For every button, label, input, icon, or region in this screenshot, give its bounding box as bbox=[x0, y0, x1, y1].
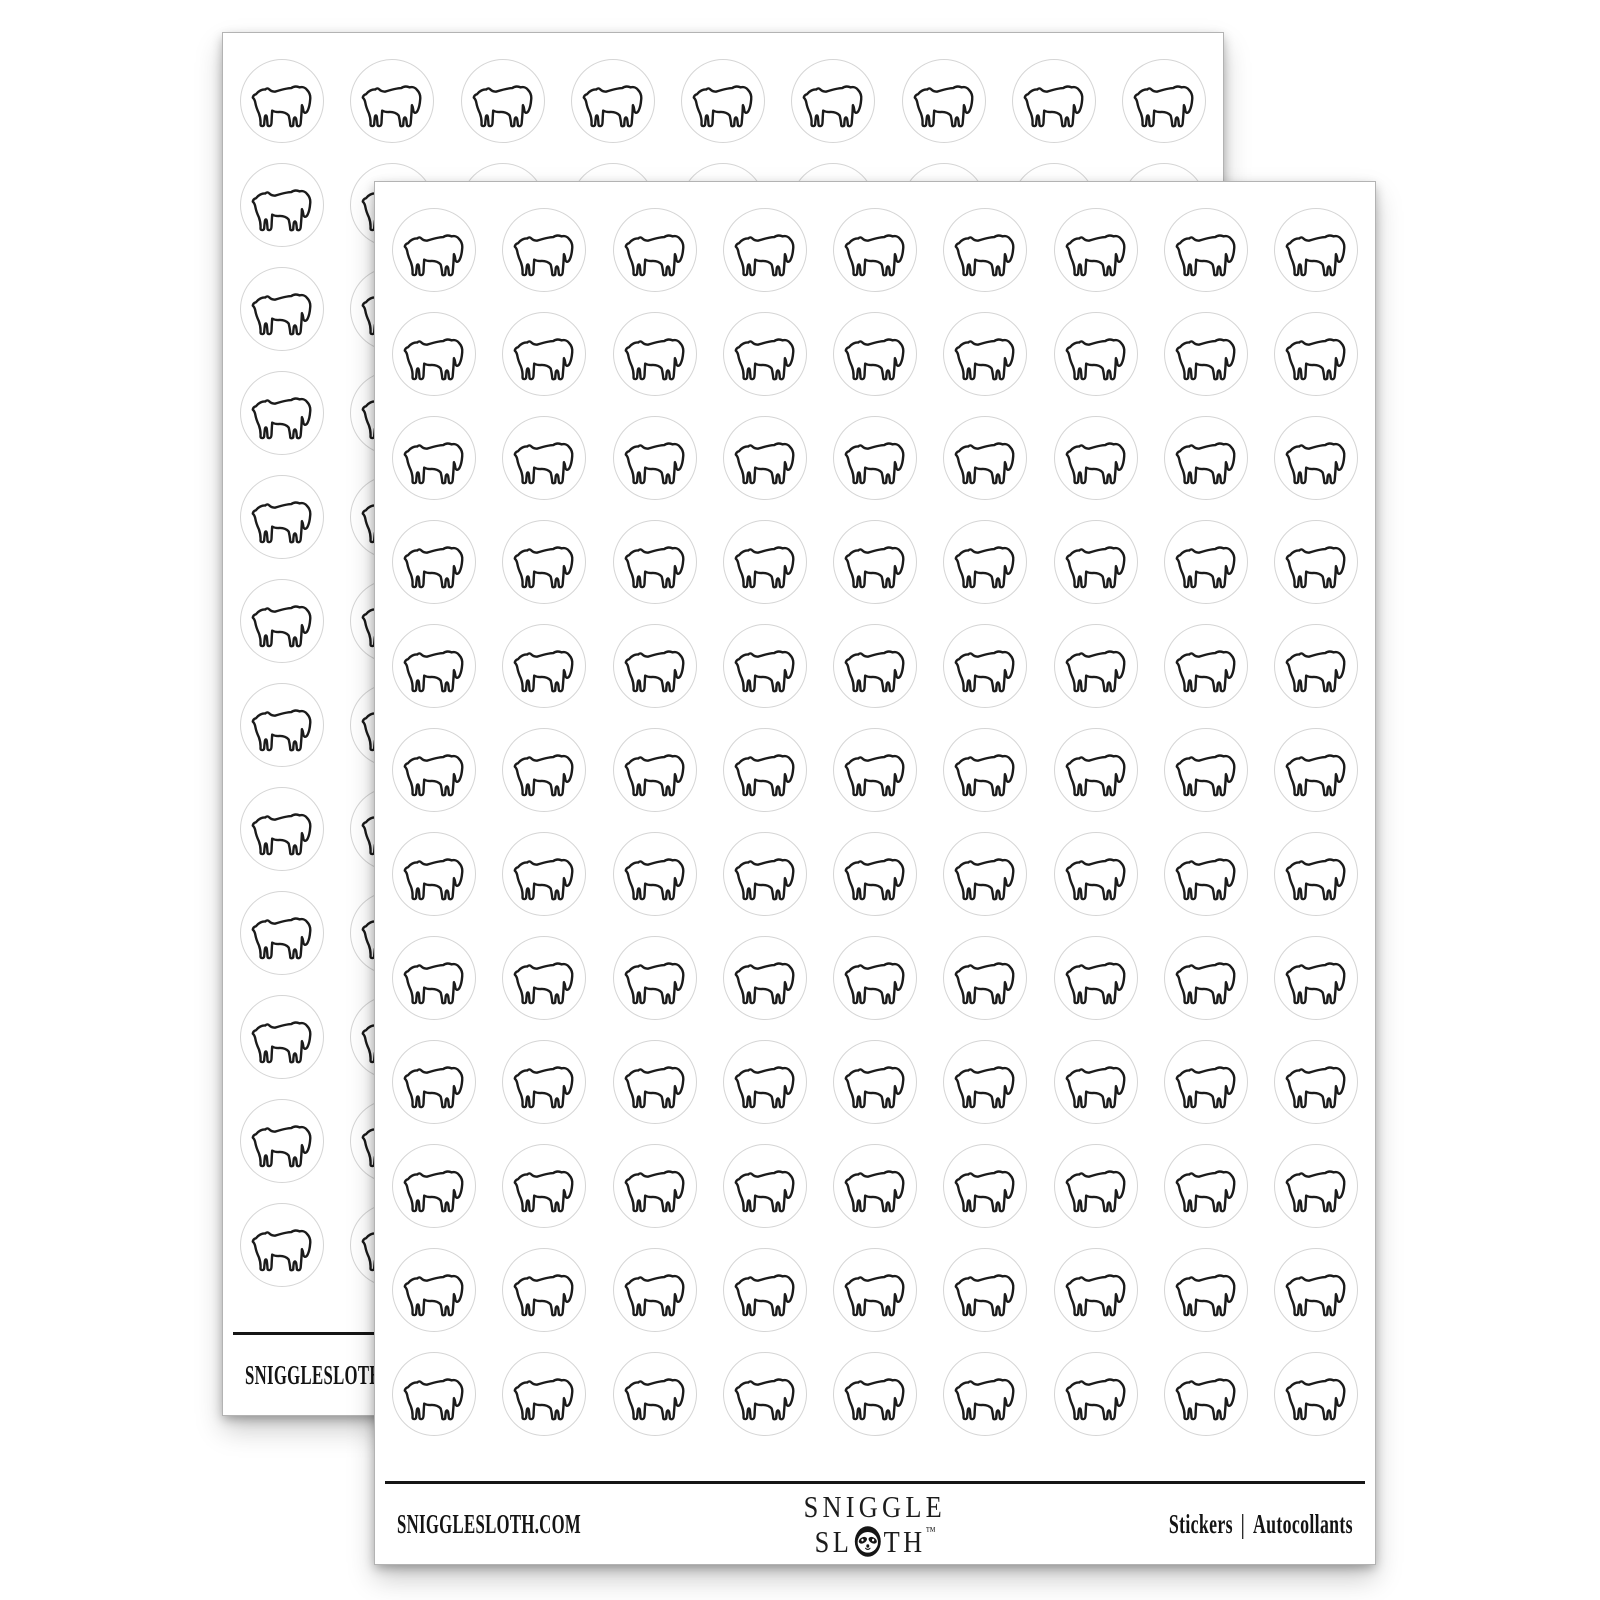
great-pyrenees-dog-outline-icon bbox=[250, 77, 314, 129]
dog-sticker bbox=[1054, 520, 1138, 604]
dog-sticker bbox=[1274, 312, 1358, 396]
great-pyrenees-dog-outline-icon bbox=[953, 434, 1017, 486]
great-pyrenees-dog-outline-icon bbox=[402, 330, 466, 382]
great-pyrenees-dog-outline-icon bbox=[623, 1266, 687, 1318]
dog-sticker bbox=[1054, 208, 1138, 292]
label-stickers-fr: Autocollants bbox=[1253, 1509, 1353, 1539]
dog-sticker bbox=[833, 624, 917, 708]
great-pyrenees-dog-outline-icon bbox=[1064, 1058, 1128, 1110]
great-pyrenees-dog-outline-icon bbox=[1174, 1370, 1238, 1422]
dog-sticker bbox=[613, 1352, 697, 1436]
dog-sticker bbox=[240, 475, 324, 559]
great-pyrenees-dog-outline-icon bbox=[1174, 850, 1238, 902]
great-pyrenees-dog-outline-icon bbox=[1284, 538, 1348, 590]
dog-sticker bbox=[1164, 520, 1248, 604]
great-pyrenees-dog-outline-icon bbox=[512, 1058, 576, 1110]
great-pyrenees-dog-outline-icon bbox=[1064, 434, 1128, 486]
dog-sticker bbox=[1054, 416, 1138, 500]
footer-row: SNIGGLESLOTH.COM SNIGGLE SL bbox=[375, 1484, 1375, 1562]
dog-sticker bbox=[1054, 1352, 1138, 1436]
dog-sticker bbox=[943, 624, 1027, 708]
dog-sticker bbox=[1054, 936, 1138, 1020]
dog-sticker bbox=[1054, 624, 1138, 708]
great-pyrenees-dog-outline-icon bbox=[512, 538, 576, 590]
great-pyrenees-dog-outline-icon bbox=[1174, 434, 1238, 486]
dog-sticker bbox=[502, 936, 586, 1020]
great-pyrenees-dog-outline-icon bbox=[843, 538, 907, 590]
great-pyrenees-dog-outline-icon bbox=[402, 1058, 466, 1110]
great-pyrenees-dog-outline-icon bbox=[402, 954, 466, 1006]
dog-sticker bbox=[1164, 208, 1248, 292]
great-pyrenees-dog-outline-icon bbox=[623, 434, 687, 486]
dog-sticker bbox=[1164, 1352, 1248, 1436]
great-pyrenees-dog-outline-icon bbox=[623, 1058, 687, 1110]
great-pyrenees-dog-outline-icon bbox=[1284, 330, 1348, 382]
great-pyrenees-dog-outline-icon bbox=[623, 746, 687, 798]
great-pyrenees-dog-outline-icon bbox=[733, 642, 797, 694]
dog-sticker bbox=[502, 1248, 586, 1332]
dog-sticker bbox=[681, 59, 765, 143]
brand-line2: SL TH ™ bbox=[815, 1525, 936, 1558]
dog-sticker bbox=[1164, 1248, 1248, 1332]
dog-sticker bbox=[833, 1248, 917, 1332]
great-pyrenees-dog-outline-icon bbox=[801, 77, 865, 129]
sticker-sheet-front: SNIGGLESLOTH.COM SNIGGLE SL bbox=[375, 182, 1375, 1564]
great-pyrenees-dog-outline-icon bbox=[623, 226, 687, 278]
great-pyrenees-dog-outline-icon bbox=[250, 285, 314, 337]
great-pyrenees-dog-outline-icon bbox=[623, 1370, 687, 1422]
dog-sticker bbox=[502, 728, 586, 812]
dog-sticker bbox=[392, 832, 476, 916]
great-pyrenees-dog-outline-icon bbox=[402, 1370, 466, 1422]
great-pyrenees-dog-outline-icon bbox=[733, 954, 797, 1006]
great-pyrenees-dog-outline-icon bbox=[1174, 954, 1238, 1006]
great-pyrenees-dog-outline-icon bbox=[250, 1221, 314, 1273]
great-pyrenees-dog-outline-icon bbox=[843, 434, 907, 486]
dog-sticker bbox=[723, 208, 807, 292]
dog-sticker bbox=[723, 624, 807, 708]
great-pyrenees-dog-outline-icon bbox=[402, 538, 466, 590]
dog-sticker bbox=[502, 312, 586, 396]
great-pyrenees-dog-outline-icon bbox=[1284, 434, 1348, 486]
great-pyrenees-dog-outline-icon bbox=[843, 1266, 907, 1318]
label-divider: | bbox=[1241, 1509, 1245, 1539]
dog-sticker bbox=[240, 1203, 324, 1287]
great-pyrenees-dog-outline-icon bbox=[471, 77, 535, 129]
dog-sticker bbox=[240, 163, 324, 247]
great-pyrenees-dog-outline-icon bbox=[953, 954, 1017, 1006]
dog-sticker bbox=[833, 1352, 917, 1436]
dog-sticker bbox=[571, 59, 655, 143]
dog-sticker bbox=[1054, 1144, 1138, 1228]
great-pyrenees-dog-outline-icon bbox=[512, 746, 576, 798]
dog-sticker bbox=[1274, 1248, 1358, 1332]
dog-sticker bbox=[1274, 728, 1358, 812]
dog-sticker bbox=[613, 1144, 697, 1228]
great-pyrenees-dog-outline-icon bbox=[512, 954, 576, 1006]
dog-sticker bbox=[613, 312, 697, 396]
great-pyrenees-dog-outline-icon bbox=[1064, 226, 1128, 278]
great-pyrenees-dog-outline-icon bbox=[1284, 954, 1348, 1006]
dog-sticker bbox=[502, 520, 586, 604]
great-pyrenees-dog-outline-icon bbox=[1284, 642, 1348, 694]
dog-sticker bbox=[1164, 1144, 1248, 1228]
dog-sticker bbox=[502, 1040, 586, 1124]
great-pyrenees-dog-outline-icon bbox=[512, 1266, 576, 1318]
dog-sticker bbox=[502, 1352, 586, 1436]
great-pyrenees-dog-outline-icon bbox=[581, 77, 645, 129]
dog-sticker bbox=[943, 1352, 1027, 1436]
great-pyrenees-dog-outline-icon bbox=[843, 1370, 907, 1422]
great-pyrenees-dog-outline-icon bbox=[1022, 77, 1086, 129]
great-pyrenees-dog-outline-icon bbox=[1174, 1266, 1238, 1318]
dog-sticker bbox=[833, 416, 917, 500]
dog-sticker bbox=[943, 832, 1027, 916]
great-pyrenees-dog-outline-icon bbox=[402, 1266, 466, 1318]
dog-sticker bbox=[502, 416, 586, 500]
great-pyrenees-dog-outline-icon bbox=[691, 77, 755, 129]
dog-sticker bbox=[392, 936, 476, 1020]
sticker-grid bbox=[375, 182, 1375, 1436]
great-pyrenees-dog-outline-icon bbox=[402, 226, 466, 278]
dog-sticker bbox=[240, 1099, 324, 1183]
great-pyrenees-dog-outline-icon bbox=[250, 805, 314, 857]
great-pyrenees-dog-outline-icon bbox=[1174, 1162, 1238, 1214]
dog-sticker bbox=[1164, 832, 1248, 916]
great-pyrenees-dog-outline-icon bbox=[1284, 1058, 1348, 1110]
great-pyrenees-dog-outline-icon bbox=[843, 850, 907, 902]
website-text: SNIGGLESLOTH.COM bbox=[397, 1509, 581, 1540]
dog-sticker bbox=[833, 208, 917, 292]
great-pyrenees-dog-outline-icon bbox=[250, 1117, 314, 1169]
dog-sticker bbox=[461, 59, 545, 143]
dog-sticker bbox=[613, 728, 697, 812]
great-pyrenees-dog-outline-icon bbox=[512, 434, 576, 486]
great-pyrenees-dog-outline-icon bbox=[1064, 1266, 1128, 1318]
label-stickers-en: Stickers bbox=[1169, 1509, 1233, 1539]
dog-sticker bbox=[1164, 728, 1248, 812]
dog-sticker bbox=[1054, 312, 1138, 396]
dog-sticker bbox=[723, 1352, 807, 1436]
great-pyrenees-dog-outline-icon bbox=[1174, 746, 1238, 798]
dog-sticker bbox=[350, 59, 434, 143]
great-pyrenees-dog-outline-icon bbox=[733, 434, 797, 486]
great-pyrenees-dog-outline-icon bbox=[953, 330, 1017, 382]
great-pyrenees-dog-outline-icon bbox=[512, 850, 576, 902]
great-pyrenees-dog-outline-icon bbox=[733, 226, 797, 278]
dog-sticker bbox=[833, 312, 917, 396]
dog-sticker bbox=[1164, 624, 1248, 708]
dog-sticker bbox=[613, 936, 697, 1020]
great-pyrenees-dog-outline-icon bbox=[1174, 330, 1238, 382]
great-pyrenees-dog-outline-icon bbox=[843, 642, 907, 694]
dog-sticker bbox=[1054, 1248, 1138, 1332]
great-pyrenees-dog-outline-icon bbox=[623, 538, 687, 590]
dog-sticker bbox=[240, 59, 324, 143]
great-pyrenees-dog-outline-icon bbox=[623, 954, 687, 1006]
brand-line2-suffix: TH bbox=[884, 1526, 926, 1557]
dog-sticker bbox=[392, 416, 476, 500]
dog-sticker bbox=[1164, 312, 1248, 396]
dog-sticker bbox=[1164, 936, 1248, 1020]
great-pyrenees-dog-outline-icon bbox=[250, 493, 314, 545]
dog-sticker bbox=[943, 1144, 1027, 1228]
great-pyrenees-dog-outline-icon bbox=[1064, 1370, 1128, 1422]
dog-sticker bbox=[613, 1040, 697, 1124]
dog-sticker bbox=[943, 1040, 1027, 1124]
dog-sticker bbox=[943, 208, 1027, 292]
great-pyrenees-dog-outline-icon bbox=[250, 597, 314, 649]
great-pyrenees-dog-outline-icon bbox=[1064, 1162, 1128, 1214]
dog-sticker bbox=[1054, 728, 1138, 812]
dog-sticker bbox=[392, 1248, 476, 1332]
great-pyrenees-dog-outline-icon bbox=[1174, 642, 1238, 694]
dog-sticker bbox=[833, 1040, 917, 1124]
dog-sticker bbox=[943, 936, 1027, 1020]
great-pyrenees-dog-outline-icon bbox=[843, 1058, 907, 1110]
dog-sticker bbox=[240, 267, 324, 351]
dog-sticker bbox=[791, 59, 875, 143]
dog-sticker bbox=[613, 1248, 697, 1332]
great-pyrenees-dog-outline-icon bbox=[1174, 538, 1238, 590]
great-pyrenees-dog-outline-icon bbox=[1284, 746, 1348, 798]
dog-sticker bbox=[833, 1144, 917, 1228]
dog-sticker bbox=[1274, 520, 1358, 604]
dog-sticker bbox=[240, 683, 324, 767]
dog-sticker bbox=[502, 624, 586, 708]
dog-sticker bbox=[723, 416, 807, 500]
dog-sticker bbox=[943, 1248, 1027, 1332]
dog-sticker bbox=[943, 312, 1027, 396]
great-pyrenees-dog-outline-icon bbox=[733, 746, 797, 798]
dog-sticker bbox=[943, 416, 1027, 500]
dog-sticker bbox=[392, 312, 476, 396]
great-pyrenees-dog-outline-icon bbox=[1174, 226, 1238, 278]
great-pyrenees-dog-outline-icon bbox=[1064, 538, 1128, 590]
great-pyrenees-dog-outline-icon bbox=[953, 1058, 1017, 1110]
great-pyrenees-dog-outline-icon bbox=[1064, 642, 1128, 694]
great-pyrenees-dog-outline-icon bbox=[953, 1266, 1017, 1318]
dog-sticker bbox=[833, 936, 917, 1020]
great-pyrenees-dog-outline-icon bbox=[912, 77, 976, 129]
dog-sticker bbox=[833, 832, 917, 916]
great-pyrenees-dog-outline-icon bbox=[843, 330, 907, 382]
dog-sticker bbox=[1274, 416, 1358, 500]
dog-sticker bbox=[1012, 59, 1096, 143]
product-photo-stage: SNIGGLESLOTH.COM SNIGGLE SL bbox=[0, 0, 1600, 1600]
dog-sticker bbox=[1274, 624, 1358, 708]
great-pyrenees-dog-outline-icon bbox=[623, 330, 687, 382]
great-pyrenees-dog-outline-icon bbox=[953, 226, 1017, 278]
dog-sticker bbox=[502, 832, 586, 916]
dog-sticker bbox=[1054, 832, 1138, 916]
dog-sticker bbox=[240, 787, 324, 871]
dog-sticker bbox=[833, 520, 917, 604]
dog-sticker bbox=[392, 728, 476, 812]
great-pyrenees-dog-outline-icon bbox=[953, 1162, 1017, 1214]
great-pyrenees-dog-outline-icon bbox=[1284, 1370, 1348, 1422]
dog-sticker bbox=[902, 59, 986, 143]
great-pyrenees-dog-outline-icon bbox=[1284, 1266, 1348, 1318]
sloth-face-icon bbox=[854, 1525, 882, 1558]
dog-sticker bbox=[723, 936, 807, 1020]
dog-sticker bbox=[392, 520, 476, 604]
great-pyrenees-dog-outline-icon bbox=[843, 1162, 907, 1214]
great-pyrenees-dog-outline-icon bbox=[733, 850, 797, 902]
great-pyrenees-dog-outline-icon bbox=[953, 1370, 1017, 1422]
great-pyrenees-dog-outline-icon bbox=[512, 1370, 576, 1422]
great-pyrenees-dog-outline-icon bbox=[953, 746, 1017, 798]
dog-sticker bbox=[1164, 416, 1248, 500]
great-pyrenees-dog-outline-icon bbox=[1284, 1162, 1348, 1214]
great-pyrenees-dog-outline-icon bbox=[623, 850, 687, 902]
great-pyrenees-dog-outline-icon bbox=[512, 1162, 576, 1214]
great-pyrenees-dog-outline-icon bbox=[843, 746, 907, 798]
great-pyrenees-dog-outline-icon bbox=[512, 330, 576, 382]
great-pyrenees-dog-outline-icon bbox=[953, 850, 1017, 902]
dog-sticker bbox=[613, 416, 697, 500]
dog-sticker bbox=[1274, 832, 1358, 916]
great-pyrenees-dog-outline-icon bbox=[733, 1266, 797, 1318]
dog-sticker bbox=[502, 1144, 586, 1228]
great-pyrenees-dog-outline-icon bbox=[733, 1058, 797, 1110]
dog-sticker bbox=[240, 891, 324, 975]
dog-sticker bbox=[723, 832, 807, 916]
great-pyrenees-dog-outline-icon bbox=[623, 642, 687, 694]
dog-sticker bbox=[392, 624, 476, 708]
great-pyrenees-dog-outline-icon bbox=[953, 642, 1017, 694]
dog-sticker bbox=[392, 1144, 476, 1228]
dog-sticker bbox=[723, 1040, 807, 1124]
dog-sticker bbox=[1274, 936, 1358, 1020]
great-pyrenees-dog-outline-icon bbox=[512, 226, 576, 278]
dog-sticker bbox=[833, 728, 917, 812]
dog-sticker bbox=[240, 579, 324, 663]
brand-line1: SNIGGLE bbox=[804, 1491, 946, 1522]
dog-sticker bbox=[613, 624, 697, 708]
great-pyrenees-dog-outline-icon bbox=[512, 642, 576, 694]
great-pyrenees-dog-outline-icon bbox=[250, 389, 314, 441]
dog-sticker bbox=[943, 728, 1027, 812]
dog-sticker bbox=[1274, 1040, 1358, 1124]
great-pyrenees-dog-outline-icon bbox=[250, 701, 314, 753]
dog-sticker bbox=[723, 1144, 807, 1228]
dog-sticker bbox=[613, 832, 697, 916]
dog-sticker bbox=[613, 520, 697, 604]
great-pyrenees-dog-outline-icon bbox=[250, 1013, 314, 1065]
great-pyrenees-dog-outline-icon bbox=[1284, 850, 1348, 902]
dog-sticker bbox=[1274, 1144, 1358, 1228]
language-labels: Stickers|Autocollants bbox=[1169, 1509, 1353, 1540]
dog-sticker bbox=[240, 371, 324, 455]
great-pyrenees-dog-outline-icon bbox=[1064, 850, 1128, 902]
great-pyrenees-dog-outline-icon bbox=[402, 1162, 466, 1214]
great-pyrenees-dog-outline-icon bbox=[953, 538, 1017, 590]
dog-sticker bbox=[723, 728, 807, 812]
dog-sticker bbox=[723, 312, 807, 396]
dog-sticker bbox=[392, 1040, 476, 1124]
brand-line2-prefix: SL bbox=[815, 1526, 853, 1557]
great-pyrenees-dog-outline-icon bbox=[250, 181, 314, 233]
dog-sticker bbox=[240, 995, 324, 1079]
great-pyrenees-dog-outline-icon bbox=[1132, 77, 1196, 129]
great-pyrenees-dog-outline-icon bbox=[1064, 954, 1128, 1006]
brand-logo: SNIGGLE SL TH bbox=[791, 1491, 959, 1558]
great-pyrenees-dog-outline-icon bbox=[402, 746, 466, 798]
dog-sticker bbox=[1274, 208, 1358, 292]
great-pyrenees-dog-outline-icon bbox=[402, 850, 466, 902]
great-pyrenees-dog-outline-icon bbox=[843, 226, 907, 278]
dog-sticker bbox=[943, 520, 1027, 604]
great-pyrenees-dog-outline-icon bbox=[623, 1162, 687, 1214]
sheet-footer: SNIGGLESLOTH.COM SNIGGLE SL bbox=[375, 1481, 1375, 1562]
dog-sticker bbox=[392, 208, 476, 292]
dog-sticker bbox=[613, 208, 697, 292]
great-pyrenees-dog-outline-icon bbox=[402, 642, 466, 694]
great-pyrenees-dog-outline-icon bbox=[360, 77, 424, 129]
great-pyrenees-dog-outline-icon bbox=[733, 538, 797, 590]
dog-sticker bbox=[502, 208, 586, 292]
dog-sticker bbox=[1122, 59, 1206, 143]
dog-sticker bbox=[1274, 1352, 1358, 1436]
dog-sticker bbox=[1054, 1040, 1138, 1124]
great-pyrenees-dog-outline-icon bbox=[402, 434, 466, 486]
great-pyrenees-dog-outline-icon bbox=[1064, 330, 1128, 382]
dog-sticker bbox=[723, 1248, 807, 1332]
great-pyrenees-dog-outline-icon bbox=[1064, 746, 1128, 798]
great-pyrenees-dog-outline-icon bbox=[733, 1162, 797, 1214]
great-pyrenees-dog-outline-icon bbox=[733, 330, 797, 382]
trademark-symbol: ™ bbox=[925, 1525, 935, 1537]
dog-sticker bbox=[392, 1352, 476, 1436]
great-pyrenees-dog-outline-icon bbox=[1174, 1058, 1238, 1110]
great-pyrenees-dog-outline-icon bbox=[733, 1370, 797, 1422]
great-pyrenees-dog-outline-icon bbox=[1284, 226, 1348, 278]
great-pyrenees-dog-outline-icon bbox=[843, 954, 907, 1006]
dog-sticker bbox=[1164, 1040, 1248, 1124]
dog-sticker bbox=[723, 520, 807, 604]
great-pyrenees-dog-outline-icon bbox=[250, 909, 314, 961]
